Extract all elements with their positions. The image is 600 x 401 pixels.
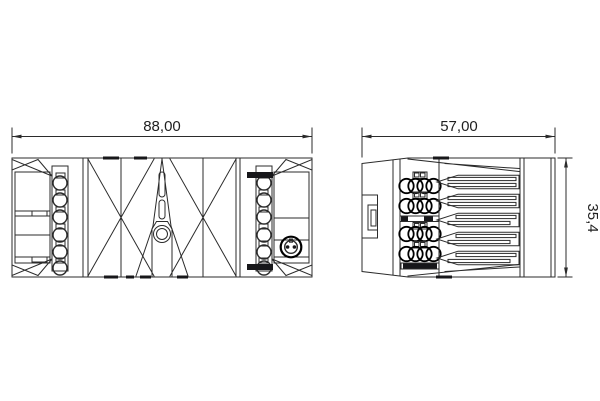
mounting-clip: [362, 195, 378, 238]
technical-drawing: 88,00 57,00 35,4: [0, 0, 600, 401]
vent-slot-lower: [159, 200, 165, 219]
corner-flap-bottom-right: [272, 259, 312, 276]
corner-flap-top-left: [12, 160, 52, 177]
label-mark-bottom: [247, 264, 273, 270]
pin-right: [293, 245, 297, 249]
connector-row-4: [399, 242, 440, 262]
mounting-keyhole-tab: [152, 222, 172, 278]
dimension-label-side-width: 57,00: [440, 118, 478, 135]
left-terminal-strip: [52, 166, 68, 275]
top-wedge: [408, 159, 519, 172]
dimension-label-side-height: 35,4: [584, 203, 600, 232]
side-view: [362, 157, 555, 279]
right-terminal-strip: [256, 166, 272, 275]
x-brace-left: [88, 159, 154, 276]
right-end-cap: [520, 158, 551, 277]
dimension-side-height: 35,4: [558, 158, 600, 277]
front-view: [12, 157, 312, 279]
side-left-walls: [393, 159, 400, 276]
drawing-canvas: 88,00 57,00 35,4: [0, 0, 600, 401]
corner-flap-top-right: [272, 160, 312, 177]
row-divider-band: [400, 216, 439, 222]
bottom-label-bar: [401, 263, 439, 269]
cover-panel: [83, 159, 240, 277]
connector-row-2: [399, 192, 440, 213]
dimension-label-front-width: 88,00: [143, 118, 181, 135]
left-connector-block: [15, 172, 50, 263]
x-brace-right: [170, 159, 236, 276]
pin-left: [286, 245, 290, 249]
dimension-front-width: 88,00: [12, 118, 312, 153]
connector-row-1: [399, 172, 440, 193]
dimension-side-width: 57,00: [362, 118, 555, 157]
label-mark-top: [247, 172, 273, 178]
connector-row-3: [399, 223, 440, 242]
